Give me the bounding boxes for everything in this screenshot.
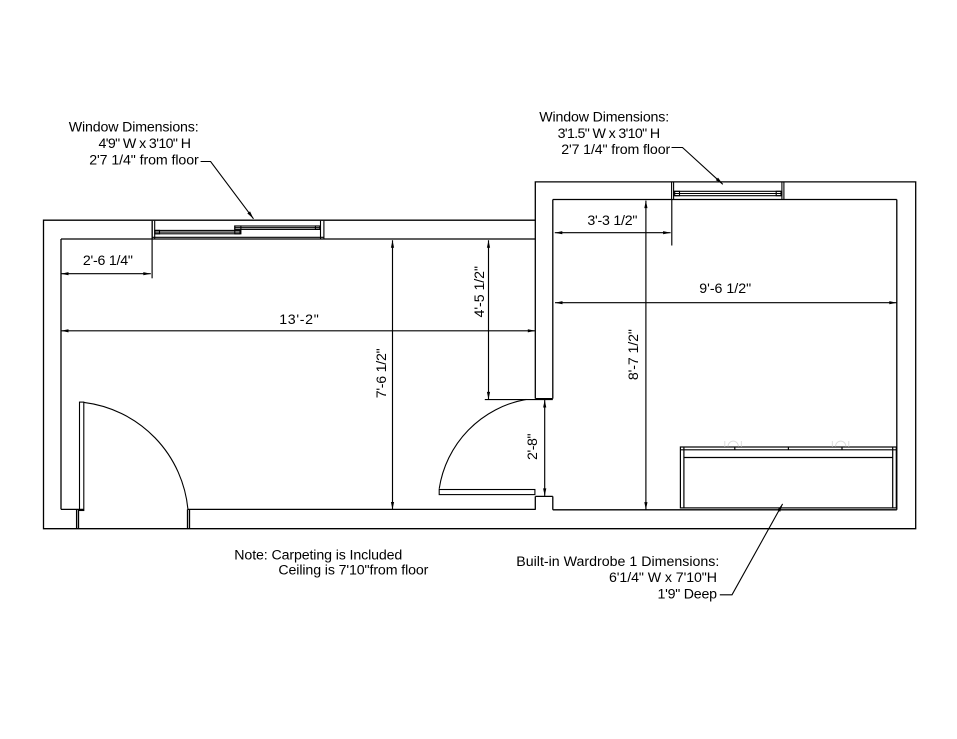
svg-text:4'9" W x 3'10" H: 4'9" W x 3'10" H [98, 136, 191, 152]
svg-text:Window Dimensions:: Window Dimensions: [69, 120, 199, 136]
svg-text:2'7 1/4" from floor: 2'7 1/4" from floor [561, 142, 670, 158]
svg-text:2'-6 1/4": 2'-6 1/4" [83, 253, 133, 269]
svg-text:1'9" Deep: 1'9" Deep [658, 586, 718, 602]
svg-text:13'-2": 13'-2" [279, 312, 319, 328]
svg-text:Built-in Wardrobe 1 Dimensions: Built-in Wardrobe 1 Dimensions: [516, 554, 719, 570]
svg-text:3'-3 1/2": 3'-3 1/2" [587, 213, 637, 229]
svg-text:Note: Carpeting is Included: Note: Carpeting is Included [234, 547, 402, 563]
svg-text:9'-6 1/2": 9'-6 1/2" [699, 281, 751, 297]
svg-text:2'-8": 2'-8" [525, 433, 541, 460]
svg-text:Ceiling is 7'10"from floor: Ceiling is 7'10"from floor [278, 562, 428, 578]
svg-text:3'1.5" W x 3'10" H: 3'1.5" W x 3'10" H [558, 126, 661, 142]
svg-text:7'-6 1/2": 7'-6 1/2" [374, 348, 390, 398]
svg-text:4'-5 1/2": 4'-5 1/2" [472, 266, 488, 318]
svg-text:6'1/4" W x 7'10"H: 6'1/4" W x 7'10"H [609, 570, 717, 586]
svg-text:Window Dimensions:: Window Dimensions: [539, 110, 669, 126]
svg-text:8'-7 1/2": 8'-7 1/2" [626, 329, 642, 380]
svg-text:2'7 1/4" from floor: 2'7 1/4" from floor [89, 153, 199, 169]
